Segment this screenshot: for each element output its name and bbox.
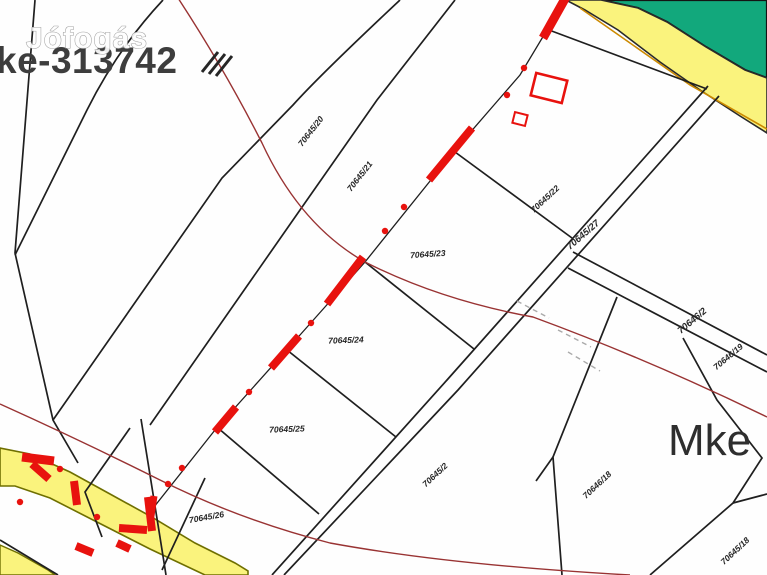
red-dash-5 xyxy=(215,407,236,432)
parcel-label-70645-22: 70645/22 xyxy=(529,183,562,215)
survey-dash-3 xyxy=(568,352,600,371)
red-bar xyxy=(22,457,54,461)
red-bar xyxy=(74,481,77,505)
buildings xyxy=(512,73,567,126)
region-label-mke: Mke xyxy=(668,416,751,465)
red-dash-2 xyxy=(429,128,472,180)
highlighted-boundary xyxy=(151,0,566,516)
red-dot xyxy=(165,481,171,487)
boundary-right-spur xyxy=(536,457,553,481)
red-dot xyxy=(401,204,407,210)
contour-lines xyxy=(0,0,767,575)
road-branch-edge-b xyxy=(568,268,767,372)
parcel-boundary-lines xyxy=(0,0,767,575)
map-id-hatch-mark xyxy=(202,52,232,76)
parcel-label-70645-2: 70645/2 xyxy=(420,460,449,488)
road-zone-yellow-corner xyxy=(0,545,55,575)
zone-areas xyxy=(0,0,767,575)
building-outline-large xyxy=(531,73,568,103)
boundary-right-1 xyxy=(553,297,617,575)
red-dot xyxy=(382,228,388,234)
red-dot xyxy=(179,465,185,471)
parcel-label-70645-18: 70645/18 xyxy=(719,535,752,567)
cadastral-map: 70645/20 70645/21 70645/22 70645/27 7064… xyxy=(0,0,767,575)
red-dot xyxy=(57,466,63,472)
red-dash-4 xyxy=(271,336,299,368)
hatch-stroke xyxy=(202,52,218,72)
divider-23-24 xyxy=(365,262,474,349)
red-bar xyxy=(148,497,152,531)
red-bar xyxy=(76,546,93,553)
building-outline-small xyxy=(512,112,527,126)
red-dot xyxy=(521,65,527,71)
survey-dashed-lines xyxy=(517,301,600,371)
parcel-label-70645-26: 70645/26 xyxy=(188,509,225,525)
red-bar xyxy=(119,528,147,530)
parcel-label-70645-21: 70645/21 xyxy=(345,159,375,193)
red-bar xyxy=(117,543,130,549)
red-dot xyxy=(308,320,314,326)
road-branch-edge-a xyxy=(573,252,767,355)
parcel-label-70646-18: 70646/18 xyxy=(581,469,614,501)
parcel-label-70645-24: 70645/24 xyxy=(328,334,364,345)
red-dash-3 xyxy=(327,257,363,304)
red-dot xyxy=(17,499,23,505)
road-lines xyxy=(272,86,767,575)
parcel-labels: 70645/20 70645/21 70645/22 70645/27 7064… xyxy=(188,114,751,567)
parcel-label-70645-25: 70645/25 xyxy=(269,423,305,434)
boundary-fan-3 xyxy=(150,0,455,425)
parcel-label-70645-20: 70645/20 xyxy=(296,114,326,148)
red-dot xyxy=(504,92,510,98)
parcel-label-70645-23: 70645/23 xyxy=(410,248,446,260)
highlighted-boundary-base xyxy=(150,0,565,512)
red-dot xyxy=(246,389,252,395)
watermark-jofogas: Jófogás xyxy=(26,22,148,55)
cadastral-map-page: 70645/20 70645/21 70645/22 70645/27 7064… xyxy=(0,0,767,575)
divider-25-26 xyxy=(218,428,319,514)
red-dot xyxy=(94,514,100,520)
road-27-edge-a xyxy=(272,86,708,575)
